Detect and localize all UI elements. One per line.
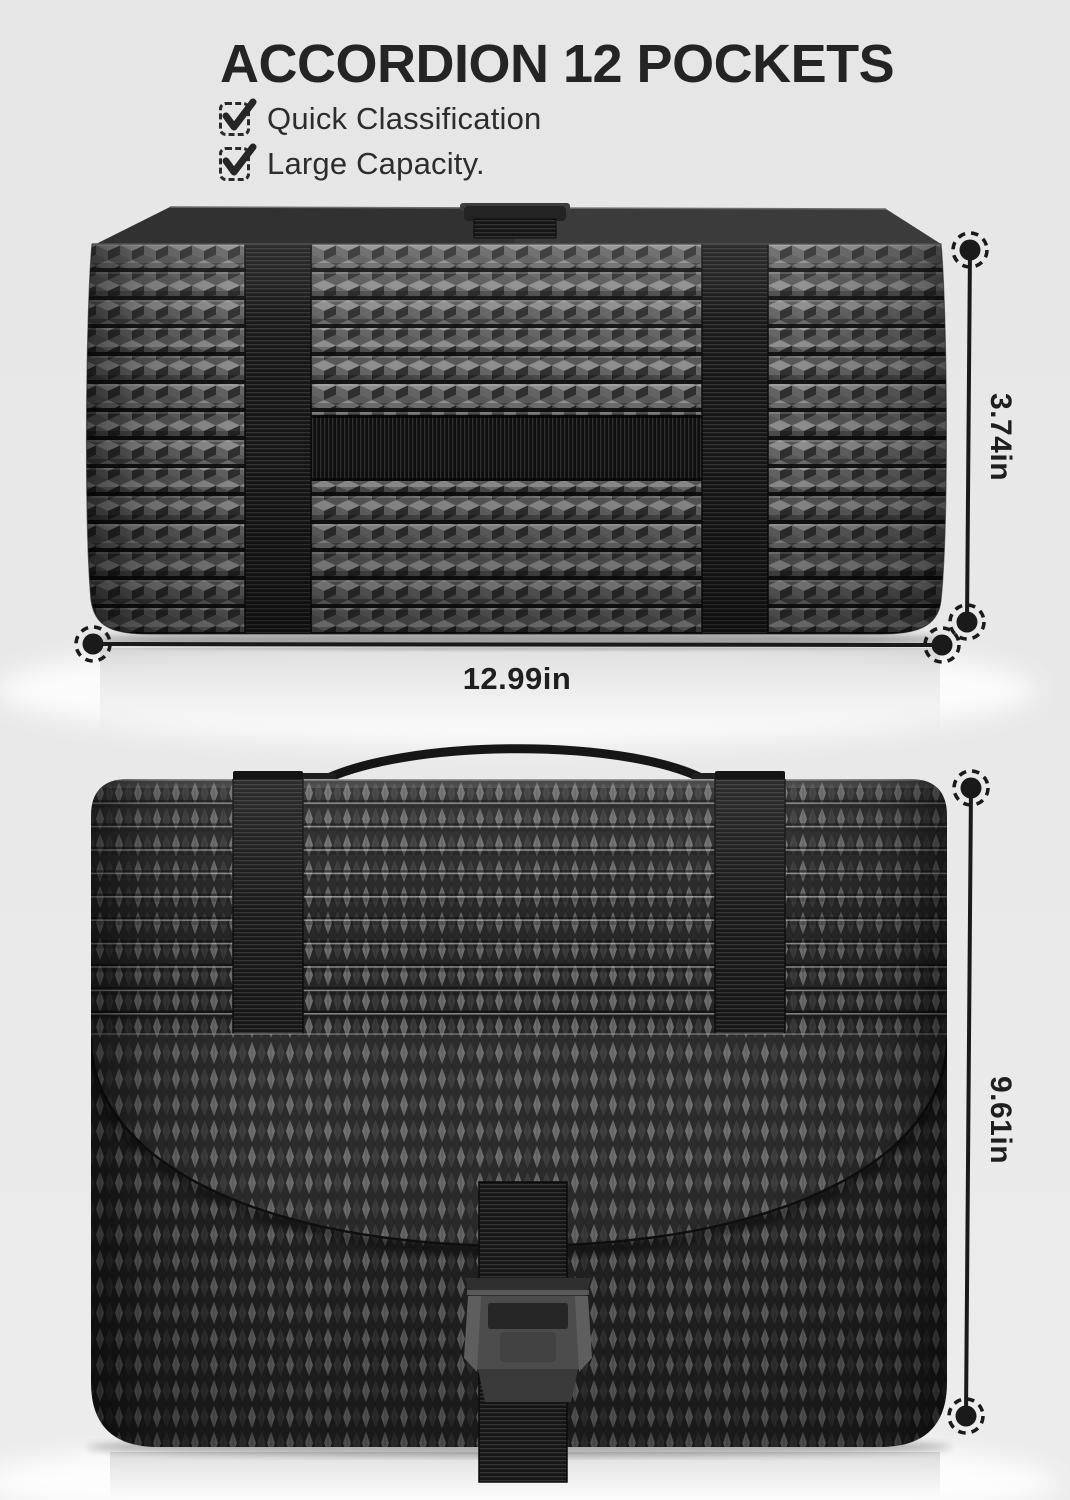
feature-item-large-capacity: Large Capacity. — [219, 147, 485, 181]
top-product-image — [80, 203, 960, 733]
feature-item-quick-classification: Quick Classification — [219, 102, 541, 136]
canvas: ACCORDION 12 POCKETS Quick Classificatio… — [0, 0, 1070, 1500]
front-height-dimension-line — [966, 788, 971, 1416]
height-dimension-line — [967, 250, 970, 622]
width-dimension-line — [93, 644, 942, 645]
feature-label: Large Capacity. — [267, 146, 485, 182]
buckle-clip — [464, 1278, 592, 1402]
top-buckle-tab — [460, 203, 570, 238]
dimension-label-width: 12.99in — [463, 661, 572, 697]
product-scene — [0, 0, 1070, 1500]
checkbox-checked — [219, 147, 250, 181]
page-title: ACCORDION 12 POCKETS — [220, 33, 894, 95]
check-icon — [219, 95, 261, 133]
feature-label: Quick Classification — [267, 101, 541, 137]
checkbox-checked — [219, 102, 250, 136]
dimension-label-front-height: 9.61in — [983, 1076, 1017, 1164]
product-infographic-page: { "header": { "title": "ACCORDION 12 POC… — [0, 0, 1070, 1500]
check-icon — [219, 140, 261, 178]
dimension-label-side-height: 3.74in — [983, 393, 1017, 481]
bottom-product-image — [87, 749, 951, 1500]
